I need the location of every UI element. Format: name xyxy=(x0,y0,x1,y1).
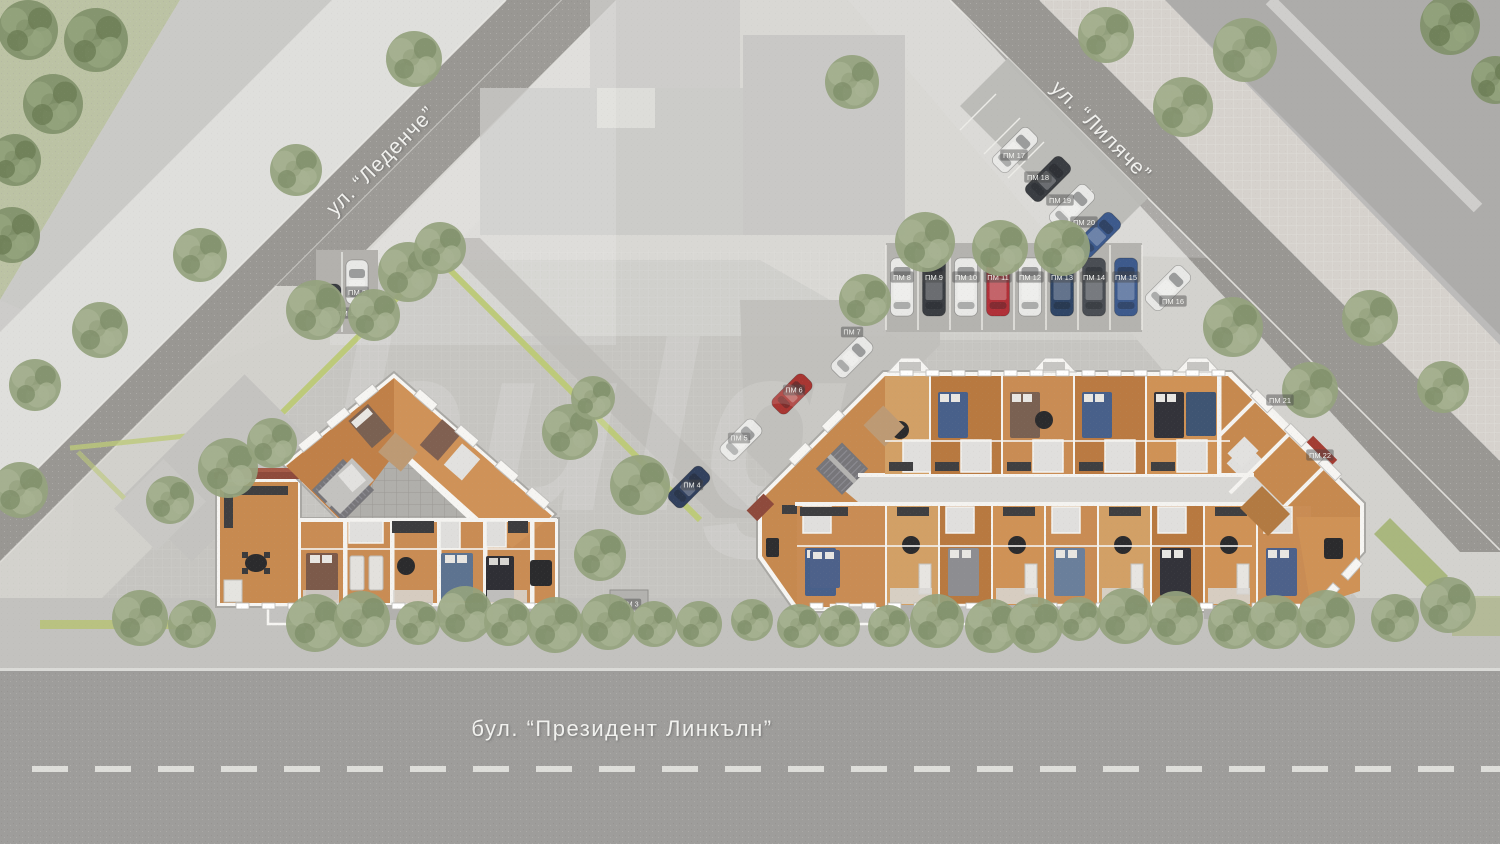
svg-text:бул. “Президент Линкълн”: бул. “Президент Линкълн” xyxy=(471,716,772,741)
svg-text:ПМ 22: ПМ 22 xyxy=(1309,451,1331,460)
svg-text:ПМ 21: ПМ 21 xyxy=(1269,396,1291,405)
